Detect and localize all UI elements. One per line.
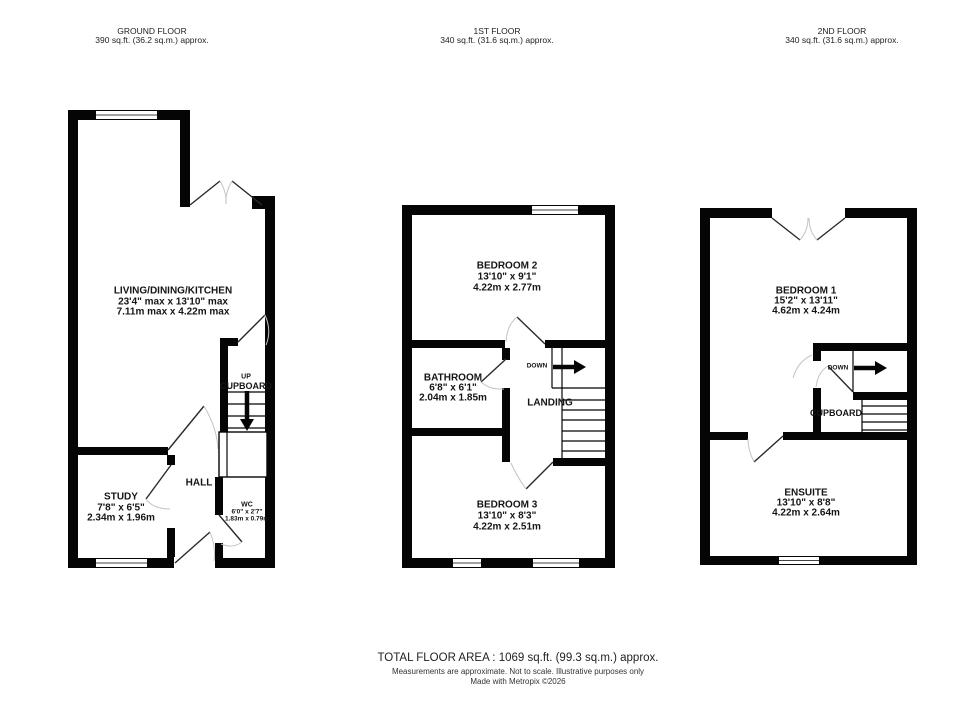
cupboard-label-ground: CUPBOARD	[220, 381, 272, 391]
down-arrow-icon	[854, 361, 887, 375]
stairs-down-label-second: DOWN	[828, 365, 849, 372]
room-label-bathroom-metric: 2.04m x 1.85m	[419, 393, 487, 404]
floorplan-page: GROUND FLOOR 390 sq.ft. (36.2 sq.m.) app…	[0, 0, 980, 718]
total-floor-area: TOTAL FLOOR AREA : 1069 sq.ft. (99.3 sq.…	[218, 652, 818, 664]
second-floor-plan	[695, 200, 922, 575]
stairs-up-label: UP	[241, 374, 251, 381]
room-label-bedroom2-metric: 4.22m x 2.77m	[473, 283, 541, 294]
study-door	[146, 465, 171, 509]
up-arrow-icon	[240, 391, 254, 431]
understairs-cupboard	[219, 432, 267, 477]
ground-floor-header: GROUND FLOOR 390 sq.ft. (36.2 sq.m.) app…	[95, 27, 208, 44]
down-arrow-icon	[553, 360, 586, 374]
ground-walls	[68, 110, 275, 568]
room-label-wc-imperial: 6'0" x 2'7"	[232, 509, 263, 516]
patio-doors	[190, 181, 262, 205]
bedroom3-door	[511, 462, 553, 489]
first-floor-header: 1ST FLOOR 340 sq.ft. (31.6 sq.m.) approx…	[440, 27, 553, 44]
room-label-bedroom2-imperial: 13'10" x 9'1"	[478, 272, 537, 283]
room-label-bedroom1-metric: 4.62m x 4.24m	[772, 306, 840, 317]
second-windows	[779, 557, 820, 565]
hall-door	[168, 406, 218, 450]
room-label-bedroom3-metric: 4.22m x 2.51m	[473, 522, 541, 533]
footer: TOTAL FLOOR AREA : 1069 sq.ft. (99.3 sq.…	[218, 652, 818, 686]
cupboard-door	[238, 315, 269, 345]
bedroom2-door	[506, 317, 545, 344]
second-stairs	[853, 351, 907, 432]
bathroom-door	[481, 359, 506, 389]
second-floor-header: 2ND FLOOR 340 sq.ft. (31.6 sq.m.) approx…	[785, 27, 898, 44]
stairs-down-label-first: DOWN	[527, 363, 548, 370]
cupboard-label-second: CUPBOARD	[810, 408, 862, 418]
room-label-hall: HALL	[186, 478, 213, 489]
stairs-door	[793, 355, 853, 392]
room-label-wc-metric: 1.83m x 0.79m	[225, 516, 269, 523]
balcony-doors	[772, 218, 845, 240]
first-floor-title: 1ST FLOOR	[440, 27, 553, 35]
room-label-living-metric: 7.11m max x 4.22m max	[117, 307, 230, 318]
room-label-wc-name: WC	[241, 502, 253, 509]
room-label-study-name: STUDY	[104, 492, 138, 503]
ground-floor-area: 390 sq.ft. (36.2 sq.m.) approx.	[95, 36, 208, 44]
room-label-living-name: LIVING/DINING/KITCHEN	[114, 286, 232, 297]
front-door	[174, 532, 215, 569]
room-label-landing: LANDING	[527, 398, 573, 409]
footer-disclaimer: Measurements are approximate. Not to sca…	[218, 667, 818, 677]
room-label-ensuite-metric: 4.22m x 2.64m	[772, 508, 840, 519]
footer-credit: Made with Metropix ©2026	[218, 677, 818, 687]
room-label-bedroom3-imperial: 13'10" x 8'3"	[478, 511, 537, 522]
second-floor-area: 340 sq.ft. (31.6 sq.m.) approx.	[785, 36, 898, 44]
room-label-study-metric: 2.34m x 1.96m	[87, 513, 155, 524]
second-floor-title: 2ND FLOOR	[785, 27, 898, 35]
room-label-bedroom2-name: BEDROOM 2	[477, 261, 538, 272]
first-floor-area: 340 sq.ft. (31.6 sq.m.) approx.	[440, 36, 553, 44]
ground-floor-title: GROUND FLOOR	[95, 27, 208, 35]
ensuite-door	[748, 436, 783, 462]
room-label-bedroom3-name: BEDROOM 3	[477, 500, 538, 511]
